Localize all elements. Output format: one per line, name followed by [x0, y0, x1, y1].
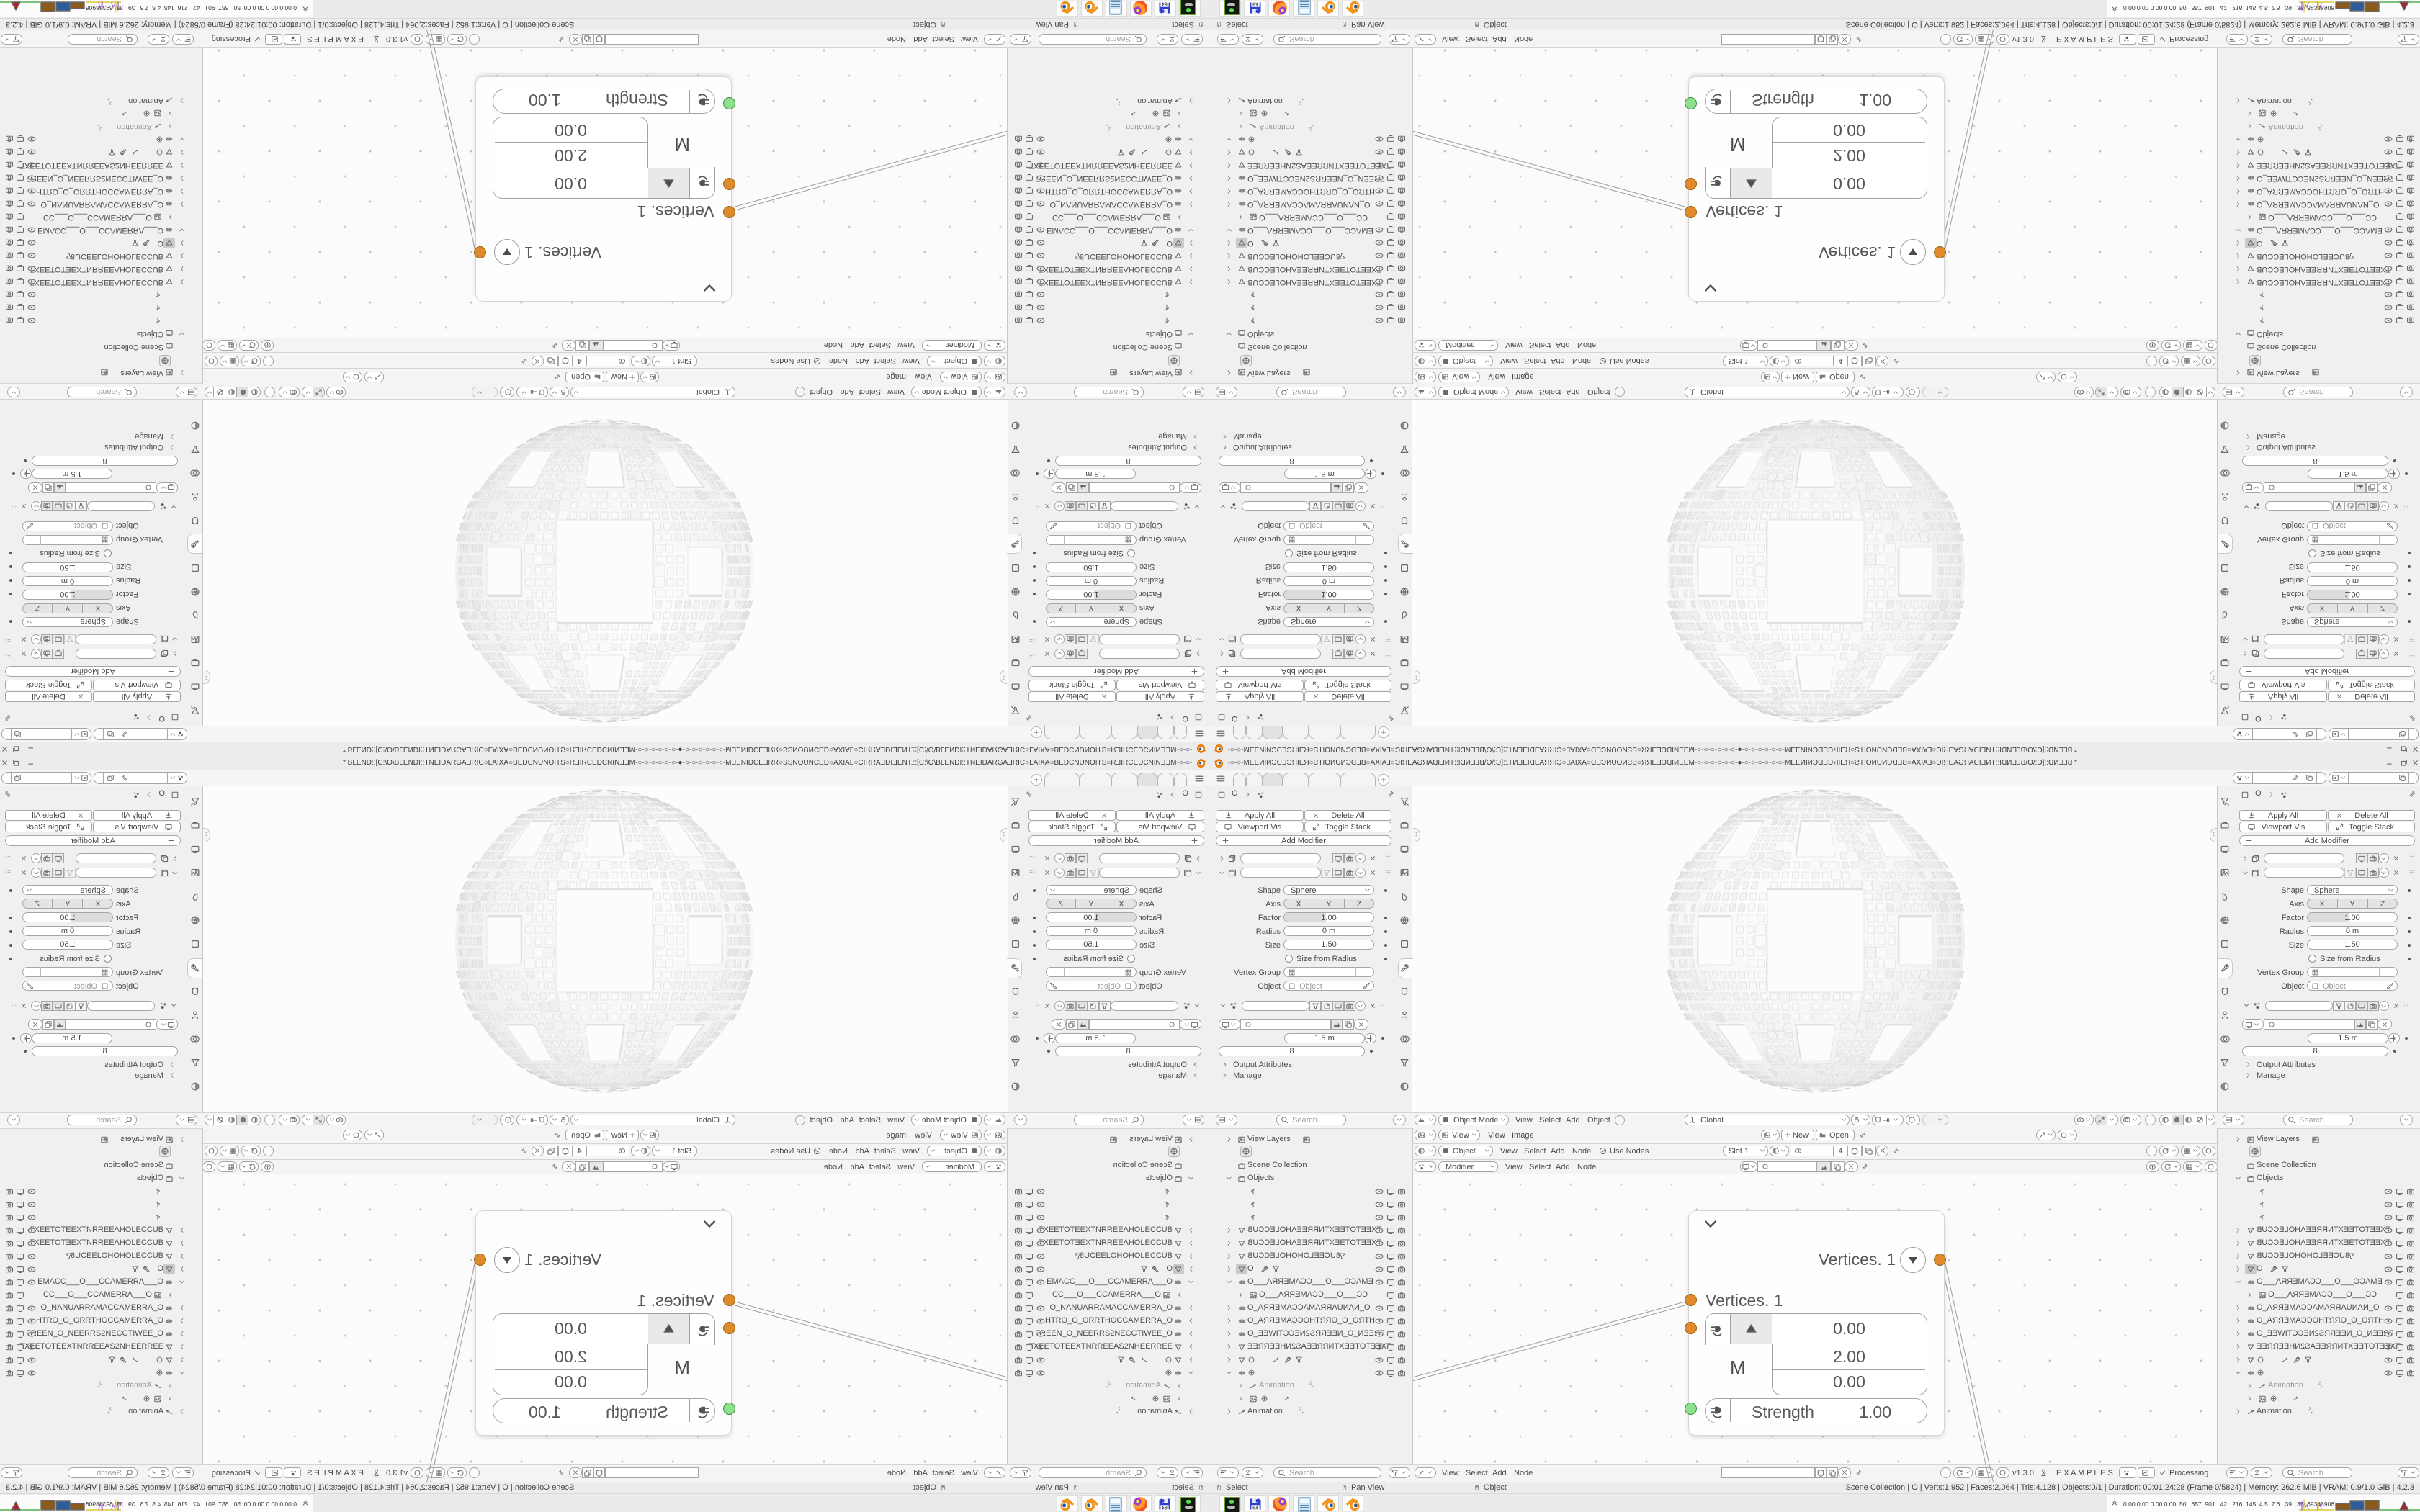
svg-text:64: 64 [1252, 1506, 1258, 1511]
svg-text:64: 64 [1162, 1506, 1168, 1511]
svg-text:64: 64 [1252, 1, 1258, 6]
svg-text:64: 64 [1162, 1, 1168, 6]
